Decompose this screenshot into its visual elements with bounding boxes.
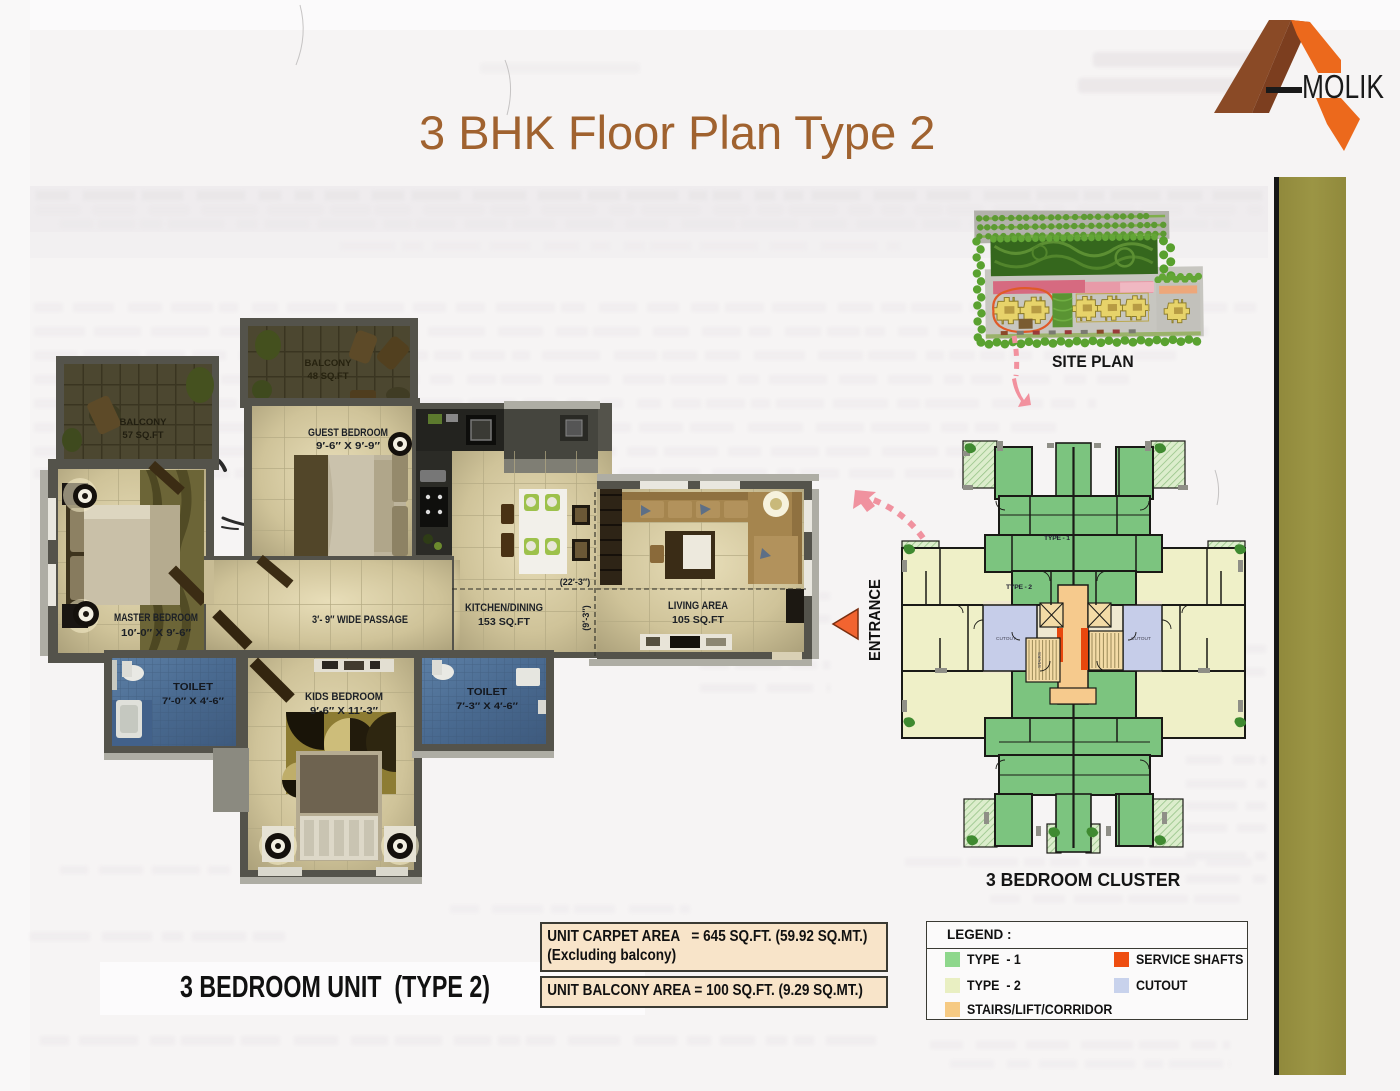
svg-text:STAIRS: STAIRS [1037, 652, 1042, 668]
svg-text:TYPE - 1: TYPE - 1 [1044, 535, 1070, 542]
svg-text:48 SQ.FT: 48 SQ.FT [307, 371, 348, 382]
svg-text:TYPE - 2: TYPE - 2 [1006, 584, 1032, 591]
svg-text:TOILET: TOILET [173, 682, 213, 693]
svg-text:MASTER BEDROOM: MASTER BEDROOM [114, 612, 198, 624]
svg-text:KITCHEN/DINING: KITCHEN/DINING [465, 602, 543, 614]
svg-text:GUEST BEDROOM: GUEST BEDROOM [308, 427, 388, 439]
svg-text:105 SQ.FT: 105 SQ.FT [672, 614, 725, 626]
svg-text:TOILET: TOILET [467, 687, 507, 698]
svg-text:BALCONY: BALCONY [305, 358, 353, 369]
svg-text:57 SQ.FT: 57 SQ.FT [122, 430, 163, 441]
svg-text:CUTOUT: CUTOUT [1131, 636, 1151, 642]
svg-text:BALCONY: BALCONY [120, 417, 168, 428]
svg-text:153 SQ.FT: 153 SQ.FT [478, 616, 531, 628]
svg-text:9′-6″ X 11′-3″: 9′-6″ X 11′-3″ [310, 706, 378, 717]
svg-text:3′- 9″ WIDE PASSAGE: 3′- 9″ WIDE PASSAGE [312, 614, 408, 626]
svg-text:CUTOUT: CUTOUT [996, 636, 1016, 642]
svg-text:LIVING AREA: LIVING AREA [668, 600, 728, 612]
svg-text:(22′-3″): (22′-3″) [560, 577, 590, 587]
svg-text:7′-0″ X 4′-6″: 7′-0″ X 4′-6″ [162, 696, 225, 707]
svg-text:7′-3″ X 4′-6″: 7′-3″ X 4′-6″ [456, 701, 519, 712]
svg-text:10′-0″ X 9′-6″: 10′-0″ X 9′-6″ [121, 628, 191, 639]
svg-text:9′-6″ X 9′-9″: 9′-6″ X 9′-9″ [316, 441, 380, 452]
svg-text:MOLIK: MOLIK [1302, 68, 1384, 105]
svg-text:(9′-3″): (9′-3″) [581, 605, 591, 630]
svg-text:KIDS BEDROOM: KIDS BEDROOM [305, 691, 383, 703]
